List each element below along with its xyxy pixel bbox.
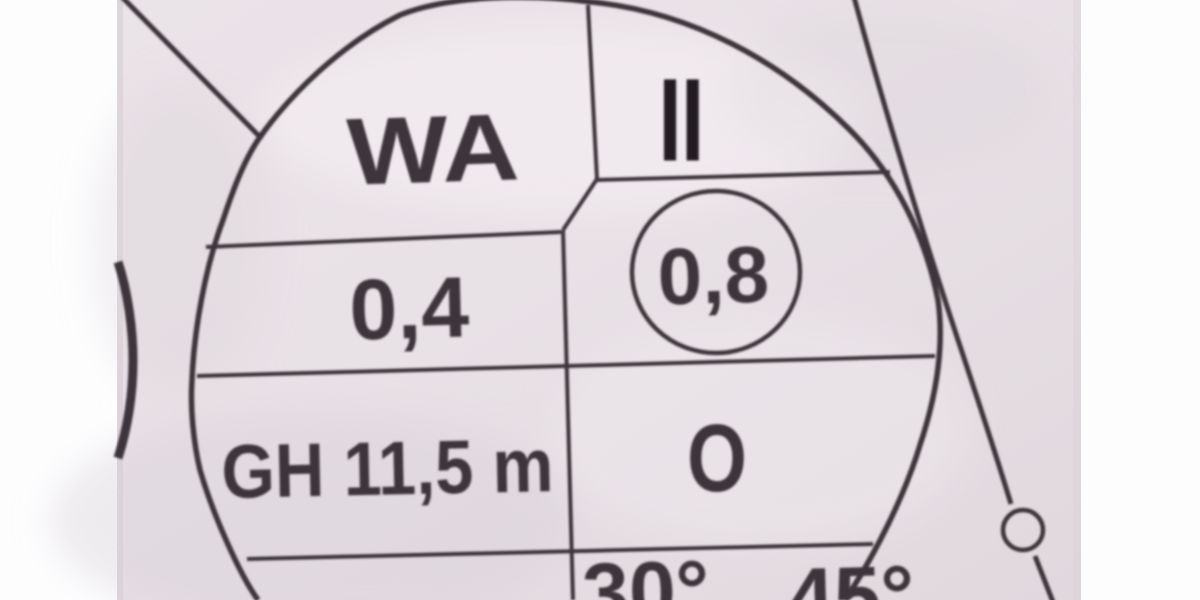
floor-area-ratio-label: 0,8 [657,230,771,322]
zoning-plan-scan: WA II 0,4 0,8 GH 11,5 m O 30° 45° [0,0,1200,600]
site-coverage-label: 0,4 [348,259,470,358]
area-type-label: WA [345,94,520,205]
storeys-label: II [658,54,703,186]
building-height-label: GH 11,5 m [221,423,555,515]
construction-type-label: O [687,405,747,512]
paper-right-edge-shadow [1073,0,1081,600]
roof-pitch-min-label: 30° [581,543,710,600]
roof-pitch-max-label: 45° [786,548,915,600]
scanned-plan-page: WA II 0,4 0,8 GH 11,5 m O 30° 45° [0,0,1200,600]
